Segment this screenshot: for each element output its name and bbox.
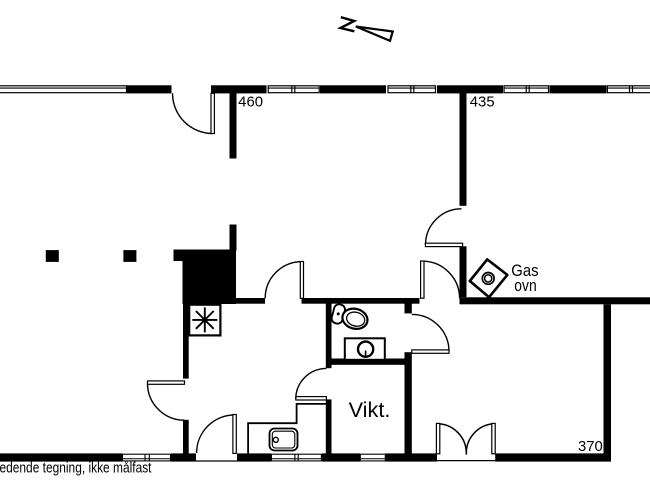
svg-text:Vikt.: Vikt. — [349, 397, 391, 422]
svg-text:edende tegning, ikke målfast: edende tegning, ikke målfast — [0, 460, 152, 476]
svg-text:460: 460 — [238, 95, 263, 111]
svg-text:435: 435 — [470, 95, 495, 111]
svg-text:ovn: ovn — [514, 276, 536, 295]
svg-text:370: 370 — [578, 439, 603, 455]
